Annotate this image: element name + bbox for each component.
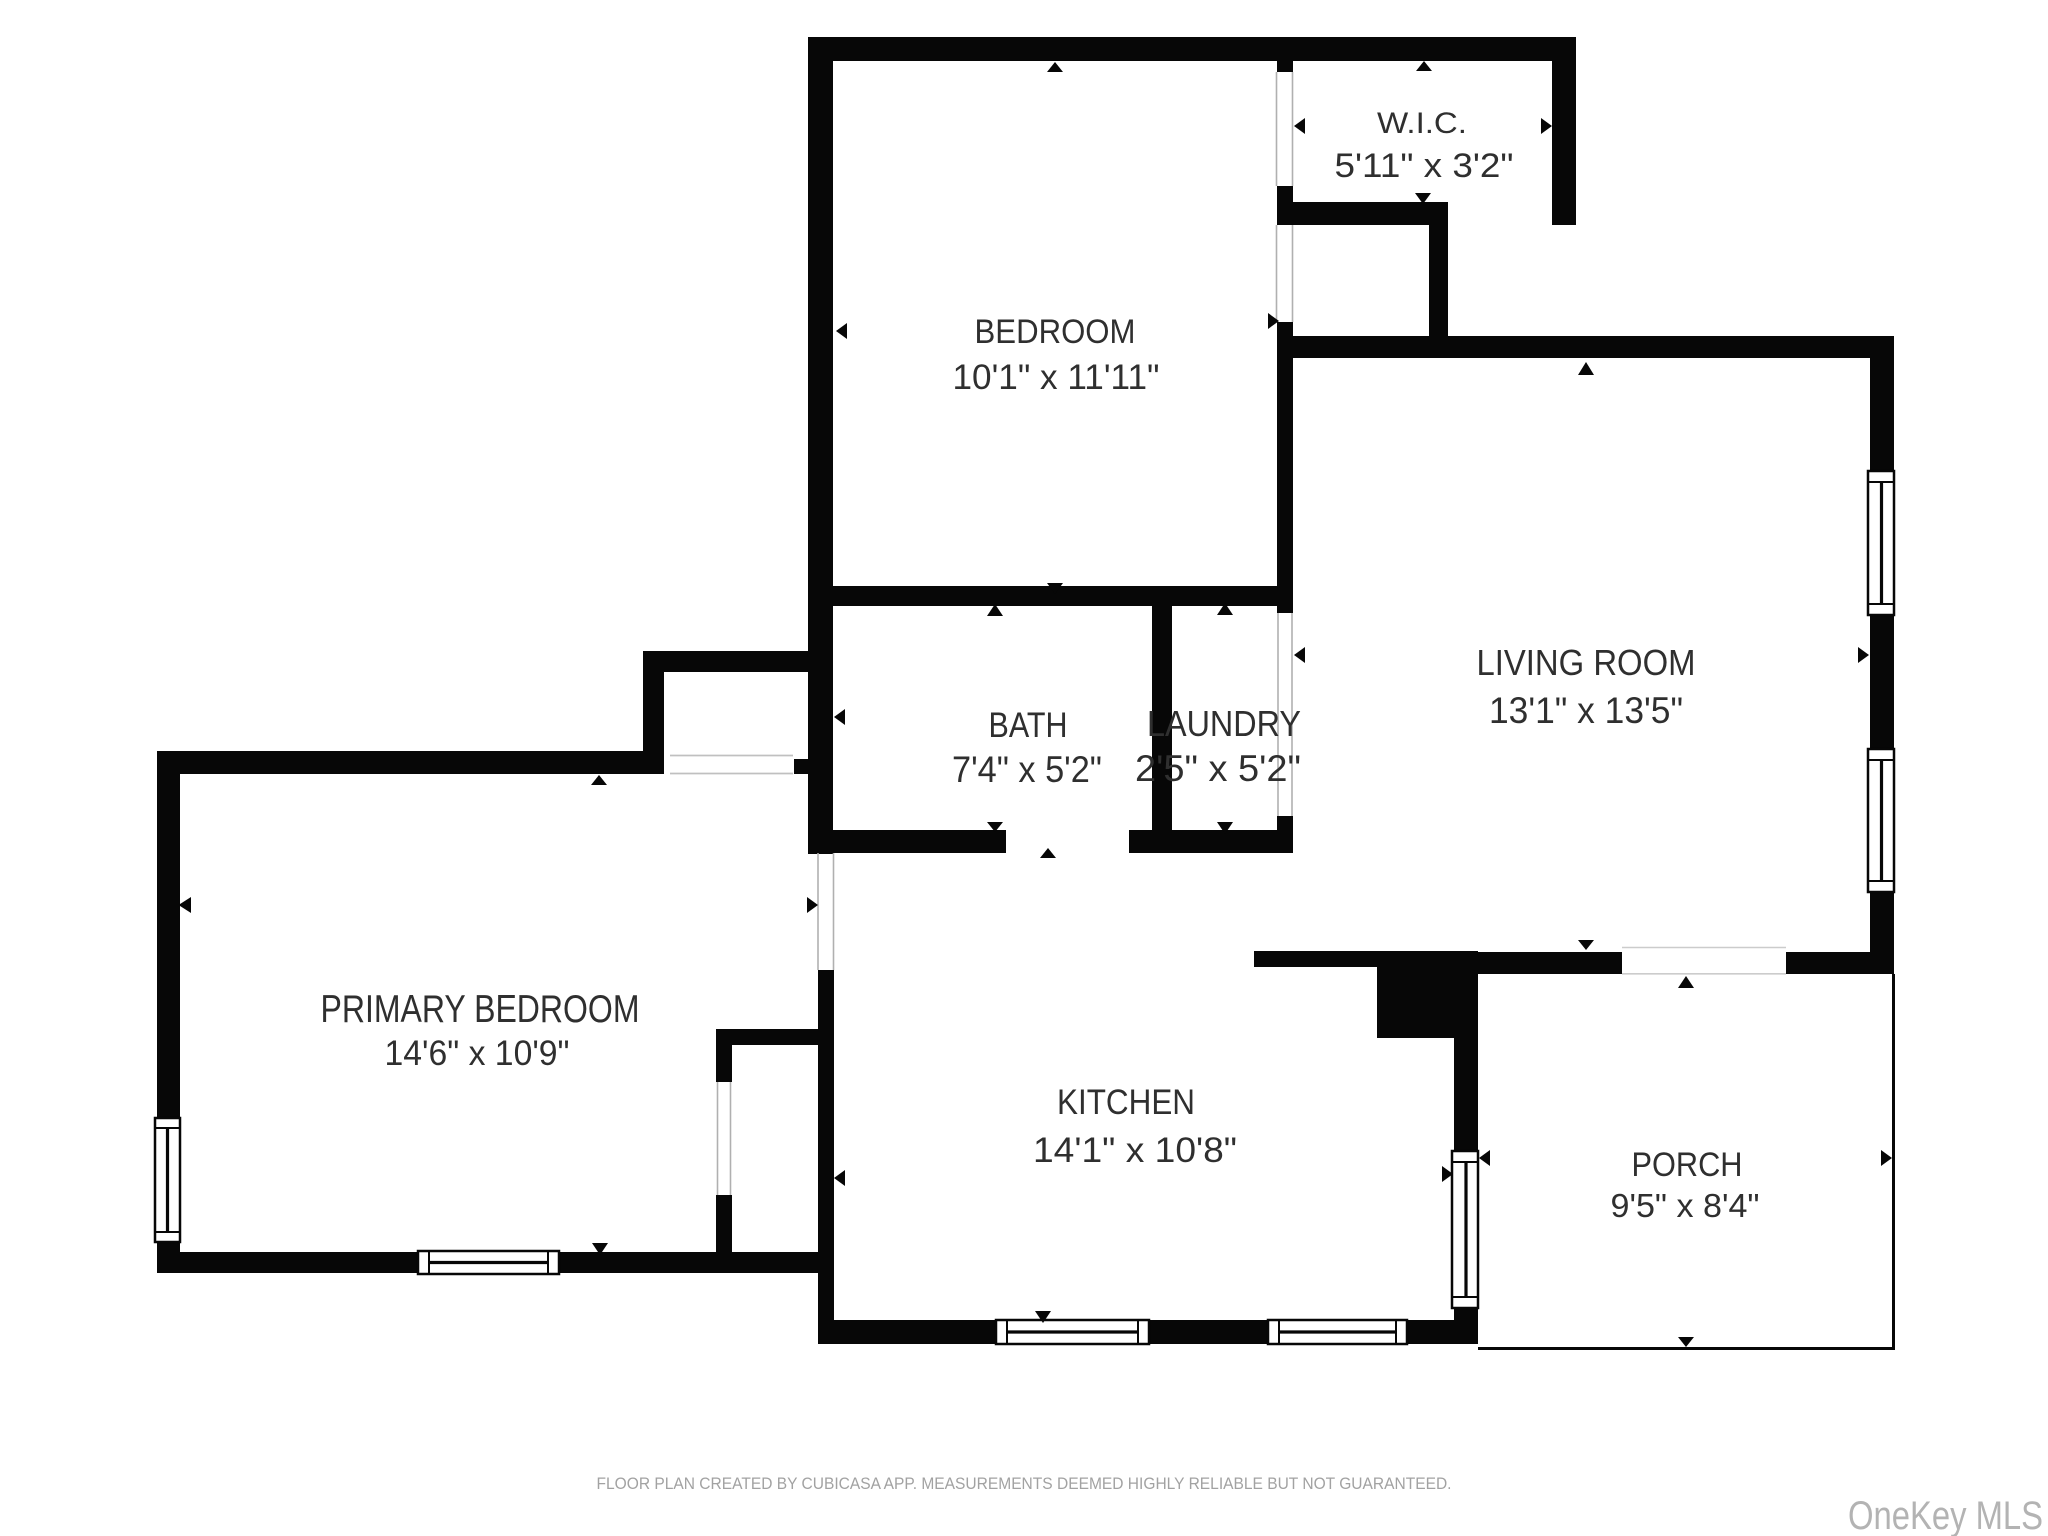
svg-text:14'6" x 10'9": 14'6" x 10'9" [385,1034,570,1073]
svg-text:5'11" x 3'2": 5'11" x 3'2" [1335,147,1514,185]
svg-text:BATH: BATH [989,706,1068,745]
svg-text:PRIMARY BEDROOM: PRIMARY BEDROOM [321,988,640,1031]
svg-text:BEDROOM: BEDROOM [975,313,1136,351]
svg-text:KITCHEN: KITCHEN [1057,1083,1195,1122]
svg-text:13'1" x 13'5": 13'1" x 13'5" [1489,690,1683,731]
svg-text:14'1" x 10'8": 14'1" x 10'8" [1033,1131,1237,1170]
svg-text:2'5" x 5'2": 2'5" x 5'2" [1135,748,1301,789]
svg-text:7'4" x 5'2": 7'4" x 5'2" [952,749,1102,790]
svg-text:LIVING ROOM: LIVING ROOM [1477,642,1696,683]
svg-text:10'1" x 11'11": 10'1" x 11'11" [953,358,1160,397]
svg-text:PORCH: PORCH [1632,1146,1743,1184]
svg-text:W.I.C.: W.I.C. [1377,107,1467,140]
svg-text:LAUNDRY: LAUNDRY [1147,703,1301,744]
svg-text:FLOOR PLAN CREATED BY CUBICASA: FLOOR PLAN CREATED BY CUBICASA APP. MEAS… [597,1475,1452,1493]
svg-text:9'5" x 8'4": 9'5" x 8'4" [1611,1187,1760,1224]
svg-text:OneKey MLS: OneKey MLS [1848,1494,2043,1536]
